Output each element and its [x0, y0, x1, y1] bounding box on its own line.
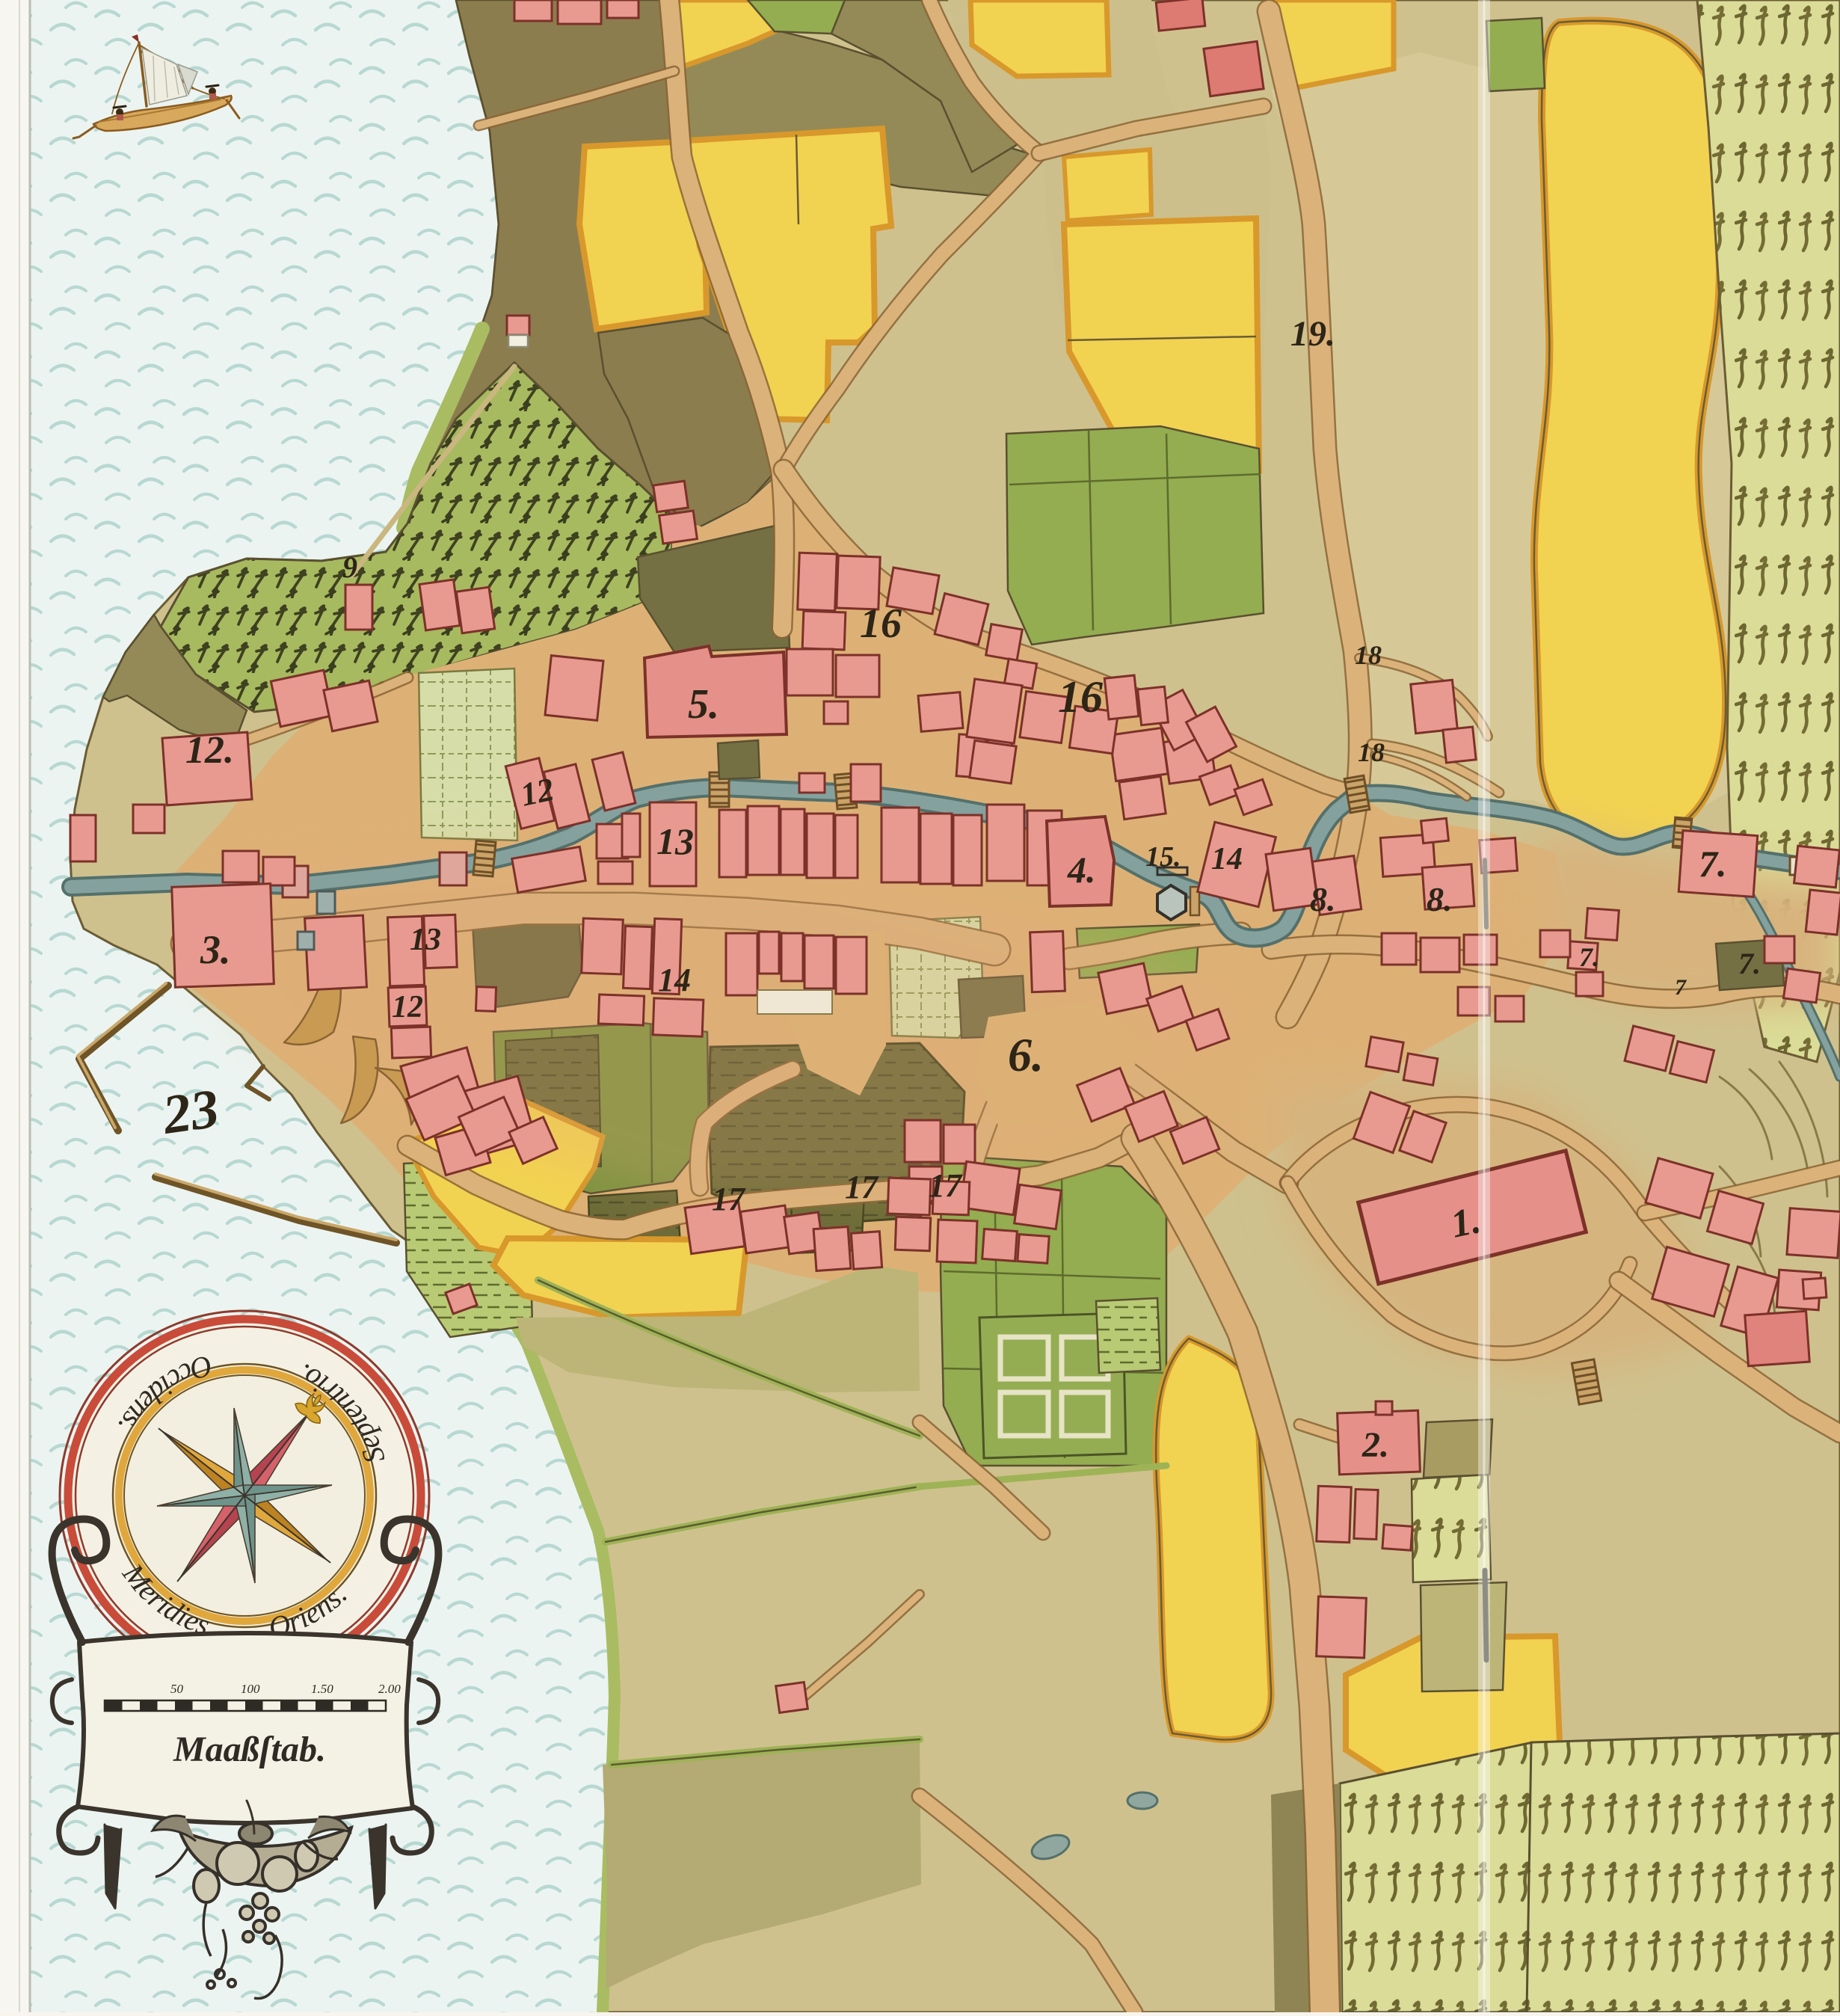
svg-text:17: 17	[845, 1169, 879, 1205]
svg-text:50: 50	[170, 1682, 184, 1696]
svg-text:5.: 5.	[688, 681, 719, 728]
svg-text:6.: 6.	[1008, 1028, 1044, 1081]
svg-text:14: 14	[658, 962, 691, 998]
svg-text:4.: 4.	[1067, 849, 1096, 891]
svg-text:8.: 8.	[1310, 880, 1336, 918]
svg-text:Maaßſtab.: Maaßſtab.	[173, 1730, 326, 1769]
svg-text:18: 18	[1355, 640, 1382, 670]
svg-text:16: 16	[1058, 672, 1103, 722]
svg-text:7: 7	[1675, 975, 1687, 1000]
svg-text:23: 23	[159, 1078, 223, 1146]
svg-text:8.: 8.	[1427, 880, 1453, 918]
svg-text:1.50: 1.50	[311, 1682, 333, 1696]
svg-text:2.: 2.	[1361, 1425, 1389, 1465]
svg-text:14: 14	[1211, 842, 1243, 876]
svg-text:17: 17	[929, 1167, 963, 1204]
svg-text:7.: 7.	[1699, 843, 1727, 885]
svg-text:17: 17	[712, 1181, 746, 1217]
svg-text:18: 18	[1358, 737, 1385, 767]
svg-text:12.: 12.	[185, 729, 234, 772]
svg-text:2.00: 2.00	[378, 1682, 401, 1696]
svg-text:9: 9	[342, 550, 357, 584]
svg-text:13: 13	[410, 923, 441, 957]
svg-text:15.: 15.	[1145, 841, 1181, 873]
svg-text:7.: 7.	[1579, 942, 1599, 972]
svg-text:13: 13	[656, 820, 694, 862]
svg-text:19.: 19.	[1290, 314, 1335, 354]
svg-text:100: 100	[241, 1682, 260, 1696]
svg-text:3.: 3.	[200, 927, 231, 972]
svg-text:16: 16	[860, 600, 902, 647]
svg-text:7.: 7.	[1738, 947, 1761, 980]
svg-text:12: 12	[392, 990, 423, 1024]
